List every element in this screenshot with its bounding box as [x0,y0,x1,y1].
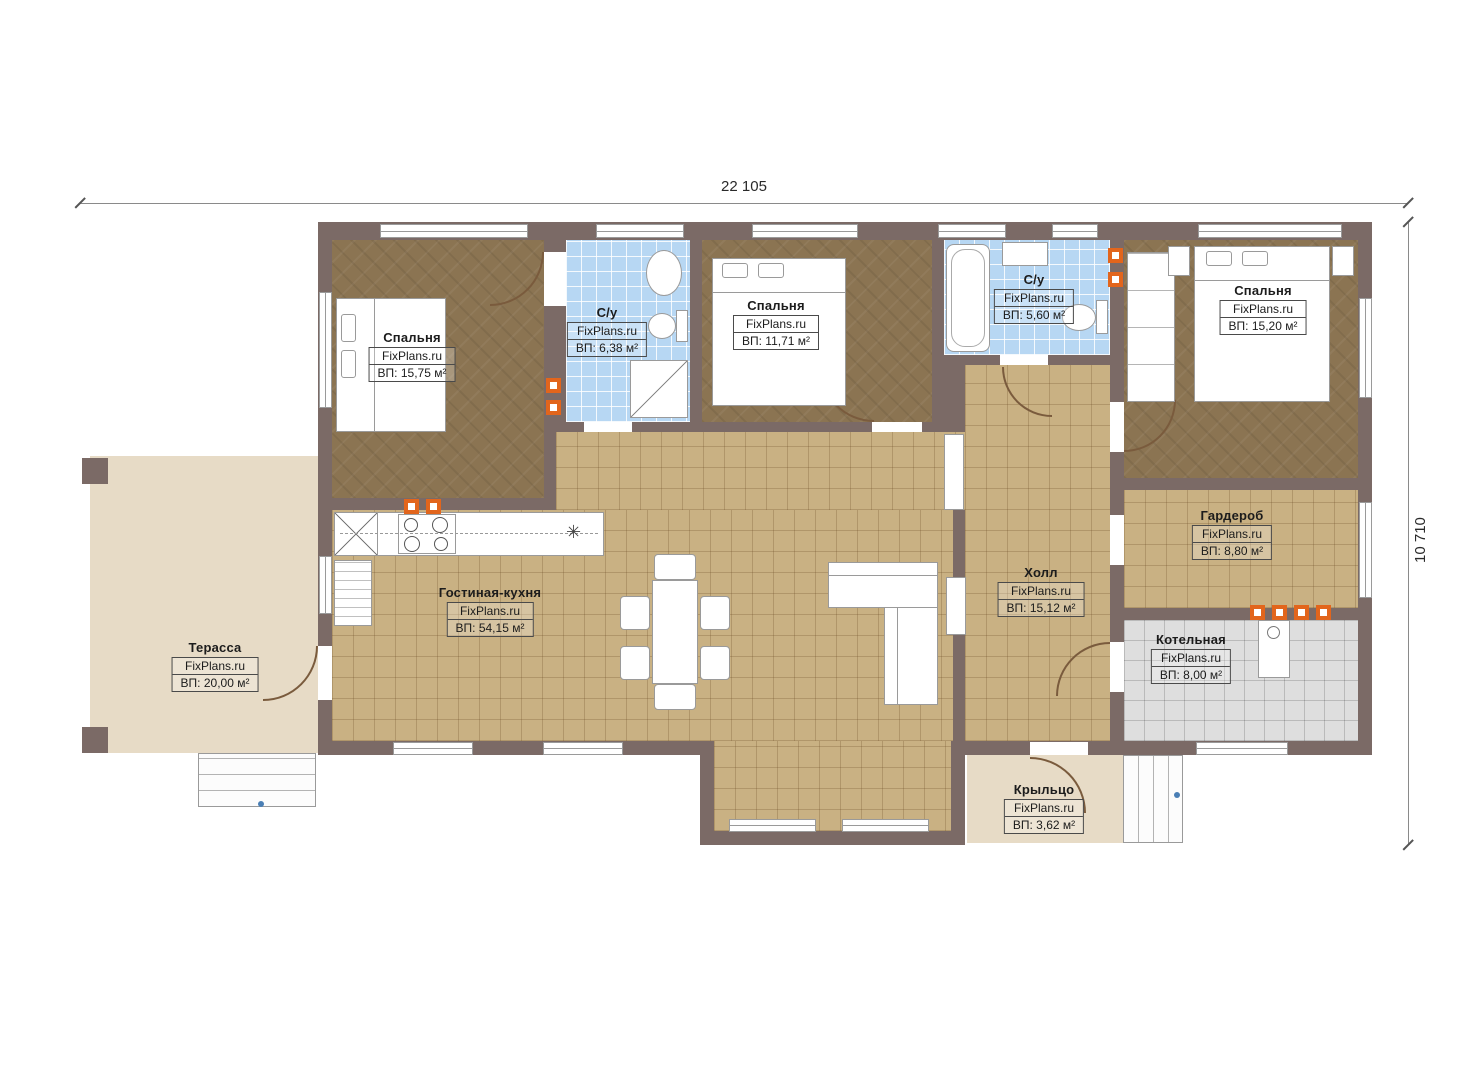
room-area: ВП: 8,80 м² [1193,542,1271,559]
radiator-vent [1316,605,1331,620]
room-name: Гардероб [1192,508,1272,523]
room-name: Холл [998,565,1085,580]
fridge [334,560,372,626]
living-floor-bay [714,741,951,831]
chair [700,596,730,630]
sofa-top [828,562,938,608]
sofa-line [897,608,898,704]
dimension-height-line [1408,222,1409,845]
room-area: ВП: 6,38 м² [568,339,646,356]
nightstand [1332,246,1354,276]
corner-cabinet [334,512,378,556]
window [393,742,473,755]
dimension-width-line [80,203,1408,204]
sofa-line [829,575,937,576]
room-label-living: Гостиная-кухня FixPlans.ru ВП: 54,15 м² [439,585,541,637]
door-opening-boiler [1110,642,1124,692]
wall-vent [1108,272,1123,287]
window [1196,742,1288,755]
counter-dash-line [340,533,598,534]
window [596,224,684,238]
window [1359,298,1372,398]
door-opening-wardrobe [1110,515,1124,565]
room-area: ВП: 3,62 м² [1005,816,1083,833]
toilet-bowl [648,313,676,339]
room-name: Спальня [369,330,456,345]
chair [700,646,730,680]
room-area: ВП: 8,00 м² [1152,666,1230,683]
window [729,819,816,832]
room-name: Котельная [1151,632,1231,647]
stove-burner [404,518,418,532]
pillow [341,350,356,378]
door-opening-terrace [318,646,332,700]
radiator-vent [1294,605,1309,620]
room-brand: FixPlans.ru [1193,526,1271,542]
hall-cabinet [944,434,964,510]
chair [654,554,696,580]
chair [620,596,650,630]
door-opening-bathroom1 [584,422,632,432]
wall-vent [546,378,561,393]
room-label-bedroom1: Спальня FixPlans.ru ВП: 15,75 м² [369,330,456,382]
wall-vent [426,499,441,514]
reference-dot [1174,792,1180,798]
room-brand: FixPlans.ru [1005,800,1083,816]
room-area: ВП: 15,20 м² [1221,317,1306,334]
wall-vent [546,400,561,415]
room-label-boiler: Котельная FixPlans.ru ВП: 8,00 м² [1151,632,1231,684]
room-name: С/у [994,272,1074,287]
living-floor-b [556,432,965,510]
room-area: ВП: 15,12 м² [999,599,1084,616]
stove-burner [432,517,448,533]
sofa-side [884,607,938,705]
room-brand: FixPlans.ru [568,323,646,339]
room-name: Терасса [172,640,259,655]
terrace-post [82,727,108,753]
terrace-floor [90,456,318,753]
room-label-bedroom3: Спальня FixPlans.ru ВП: 15,20 м² [1220,283,1307,335]
boiler-dial [1267,626,1280,639]
reference-dot [258,801,264,807]
room-label-hall: Холл FixPlans.ru ВП: 15,12 м² [998,565,1085,617]
window [938,224,1006,238]
room-brand: FixPlans.ru [1152,650,1230,666]
room-brand: FixPlans.ru [999,583,1084,599]
room-area: ВП: 11,71 м² [734,332,818,349]
room-name: Спальня [1220,283,1307,298]
room-label-terrace: Терасса FixPlans.ru ВП: 20,00 м² [172,640,259,692]
window [380,224,528,238]
hall-cabinet [946,577,966,635]
window [319,292,332,408]
window [1052,224,1098,238]
bed-line [1195,280,1329,281]
window [1198,224,1342,238]
wall-vent [1108,248,1123,263]
window [752,224,858,238]
room-area: ВП: 15,75 м² [370,364,455,381]
window [543,742,623,755]
stove-burner [404,536,420,552]
chair [654,684,696,710]
door-opening-bedroom1 [544,252,566,306]
room-name: С/у [567,305,647,320]
room-area: ВП: 20,00 м² [173,674,258,691]
room-area: ВП: 54,15 м² [448,619,533,636]
radiator-vent [1250,605,1265,620]
porch-steps [1123,755,1183,843]
door-opening-bathroom2 [1000,355,1048,365]
door-opening-bedroom2 [872,422,922,432]
room-name: Гостиная-кухня [439,585,541,600]
dimension-height-label: 10 710 [1412,517,1429,563]
nightstand [1168,246,1190,276]
room-brand: FixPlans.ru [173,658,258,674]
door-opening-bedroom3 [1110,402,1124,452]
bathtub-inner [951,249,985,347]
wall-vent [404,499,419,514]
room-brand: FixPlans.ru [370,348,455,364]
dimension-width-label: 22 105 [80,178,1408,195]
room-brand: FixPlans.ru [995,290,1073,306]
chair [620,646,650,680]
room-brand: FixPlans.ru [1221,301,1306,317]
room-label-porch: Крыльцо FixPlans.ru ВП: 3,62 м² [1004,782,1084,834]
sink [646,250,682,296]
pillow [722,263,748,278]
pillow [1206,251,1232,266]
window [1359,502,1372,598]
sink [1002,242,1048,266]
toilet-tank [1096,300,1108,334]
terrace-steps [198,753,316,807]
window [842,819,929,832]
room-brand: FixPlans.ru [734,316,818,332]
room-area: ВП: 5,60 м² [995,306,1073,323]
bed-line [713,292,845,293]
room-label-bathroom2: С/у FixPlans.ru ВП: 5,60 м² [994,272,1074,324]
kitchen-sink-icon: ✳ [566,522,581,543]
terrace-post [82,458,108,484]
pillow [758,263,784,278]
room-brand: FixPlans.ru [448,603,533,619]
pillow [1242,251,1268,266]
room-label-bedroom2: Спальня FixPlans.ru ВП: 11,71 м² [733,298,819,350]
radiator-vent [1272,605,1287,620]
dining-table [652,580,698,684]
room-name: Крыльцо [1004,782,1084,797]
floor-plan: 22 105 10 710 [0,0,1474,1080]
door-opening-entrance [1030,742,1088,755]
shower [630,360,688,418]
room-name: Спальня [733,298,819,313]
toilet-tank [676,310,688,342]
room-label-wardrobe: Гардероб FixPlans.ru ВП: 8,80 м² [1192,508,1272,560]
window [319,556,332,614]
stove-burner [434,537,448,551]
room-label-bathroom1: С/у FixPlans.ru ВП: 6,38 м² [567,305,647,357]
pillow [341,314,356,342]
